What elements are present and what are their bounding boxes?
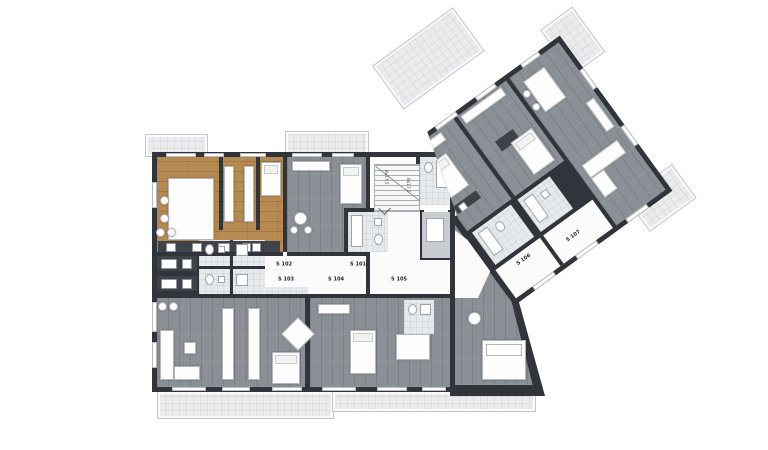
toilet <box>374 234 383 245</box>
window <box>240 153 266 157</box>
side-table <box>468 312 481 325</box>
burner <box>182 279 192 289</box>
cooktop <box>192 243 202 252</box>
wall <box>157 294 450 298</box>
window <box>152 342 157 368</box>
shower <box>236 274 248 286</box>
wardrobe <box>248 308 260 380</box>
burner <box>252 243 261 252</box>
wall <box>256 157 260 230</box>
unit-label-s105: S 105 <box>391 277 407 282</box>
unit-label-s104: S 104 <box>328 277 344 282</box>
window <box>272 387 302 391</box>
round-table <box>294 212 307 225</box>
chair <box>169 302 178 311</box>
main-building-block: 8x17,5 8x17,5 <box>152 152 455 392</box>
wall <box>199 266 265 269</box>
chair <box>167 228 176 237</box>
toilet <box>205 274 214 285</box>
kitchen-appliance <box>161 259 177 269</box>
wardrobe <box>244 166 254 222</box>
wall <box>219 157 223 230</box>
balcony-bottom-left <box>157 391 334 419</box>
chair <box>156 228 165 237</box>
window <box>222 387 250 391</box>
bed <box>350 330 376 374</box>
wardrobe <box>222 308 234 380</box>
wardrobe <box>318 304 350 314</box>
chair <box>290 226 298 234</box>
unit-label-s102: S 102 <box>276 262 292 267</box>
unit-label-s103: S 103 <box>278 277 294 282</box>
toilet <box>205 244 214 255</box>
chair <box>158 302 167 311</box>
sofa-cushion <box>486 344 522 356</box>
elevator-door <box>424 210 448 212</box>
sofa <box>396 334 430 360</box>
bed <box>340 164 362 204</box>
stair-run-label: 8x17,5 <box>406 178 410 193</box>
floor-plan: 8x17,5 8x17,5 <box>0 0 768 450</box>
burner <box>182 259 192 269</box>
toilet <box>424 162 433 173</box>
wall <box>283 157 287 252</box>
wardrobe <box>292 161 330 171</box>
balcony-wing-northwest <box>372 7 485 109</box>
chair <box>160 196 169 205</box>
wardrobe <box>224 166 234 222</box>
bathtub <box>351 215 363 247</box>
kitchen-appliance <box>161 279 177 289</box>
window <box>422 387 446 391</box>
window <box>332 153 354 157</box>
window <box>166 153 196 157</box>
sofa <box>174 366 200 380</box>
window <box>292 153 322 157</box>
window <box>204 153 224 157</box>
coffee-table <box>184 342 196 354</box>
kitchen-sink <box>166 243 176 252</box>
sink <box>218 246 225 253</box>
bed <box>272 352 300 384</box>
chair <box>304 226 312 234</box>
window <box>172 387 206 391</box>
toilet <box>408 304 417 315</box>
bed <box>261 162 281 196</box>
unit-label-s101: S 101 <box>350 262 366 267</box>
shower <box>236 244 248 256</box>
sink <box>374 218 382 226</box>
shower <box>420 304 431 315</box>
sofa <box>160 330 174 380</box>
sink <box>218 276 225 283</box>
window <box>152 182 157 208</box>
wall <box>287 252 366 256</box>
window <box>152 302 157 332</box>
window <box>322 387 356 391</box>
elevator-car <box>426 218 444 242</box>
window <box>377 387 407 391</box>
stair-run-label: 8x17,5 <box>384 170 388 185</box>
chair <box>160 214 169 223</box>
